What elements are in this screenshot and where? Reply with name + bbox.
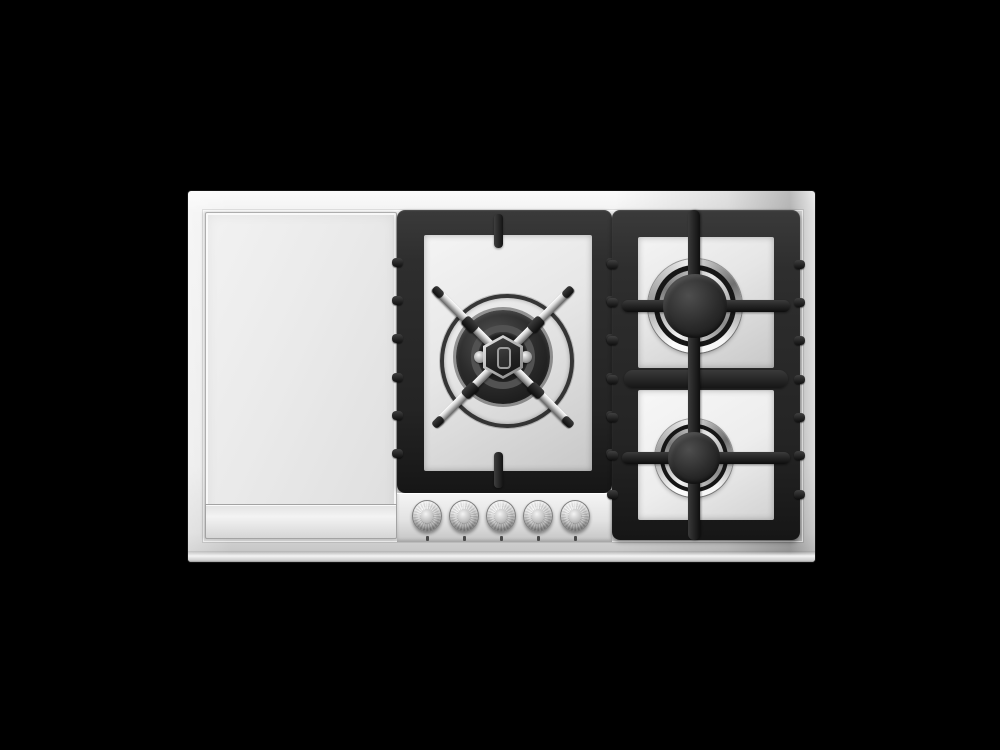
- grate-side-tab: [607, 490, 618, 499]
- wok-cap-logo: [497, 347, 511, 369]
- grate-pin-bottom: [494, 452, 503, 488]
- grate-side-tab: [794, 413, 805, 422]
- griddle-plate: [205, 212, 397, 539]
- grate-side-tab: [794, 451, 805, 460]
- griddle-lip: [205, 504, 397, 539]
- burner-knob[interactable]: [449, 500, 479, 532]
- knob-indicator-mark: [500, 536, 503, 541]
- grate-vertical-bar: [688, 210, 700, 540]
- grate-side-tab: [607, 298, 618, 307]
- module-divider-bar: [624, 370, 788, 388]
- grate-side-tab: [392, 334, 403, 343]
- burner-knob[interactable]: [523, 500, 553, 532]
- knob-indicator-mark: [426, 536, 429, 541]
- grate-side-tab: [794, 490, 805, 499]
- burner-cap: [668, 432, 720, 484]
- grate-side-tab: [794, 260, 805, 269]
- grate-side-tab: [607, 336, 618, 345]
- grate-side-tab: [392, 296, 403, 305]
- knob-indicator-mark: [574, 536, 577, 541]
- grate-side-tab: [392, 373, 403, 382]
- cooktop-body: [188, 191, 815, 562]
- grate-side-tab: [607, 375, 618, 384]
- grate-side-tab: [607, 451, 618, 460]
- cooktop-front-edge: [188, 551, 815, 562]
- grate-side-tab: [794, 375, 805, 384]
- grate-side-tab: [794, 336, 805, 345]
- grate-side-tab: [607, 413, 618, 422]
- grate-side-tab: [392, 258, 403, 267]
- center-burner-module: [397, 210, 612, 493]
- grate-side-tab: [794, 298, 805, 307]
- right-burner-module: [612, 210, 800, 540]
- knob-indicator-mark: [537, 536, 540, 541]
- knob-strip: [397, 493, 612, 542]
- photo-background: [0, 0, 1000, 750]
- burner-knob[interactable]: [486, 500, 516, 532]
- grate-side-tab: [607, 260, 618, 269]
- grate-side-tab: [392, 449, 403, 458]
- grate-side-tab: [392, 411, 403, 420]
- knob-indicator-mark: [463, 536, 466, 541]
- burner-knob[interactable]: [412, 500, 442, 532]
- burner-cap: [663, 274, 727, 338]
- grate-pin-top: [494, 214, 503, 248]
- burner-knob[interactable]: [560, 500, 590, 532]
